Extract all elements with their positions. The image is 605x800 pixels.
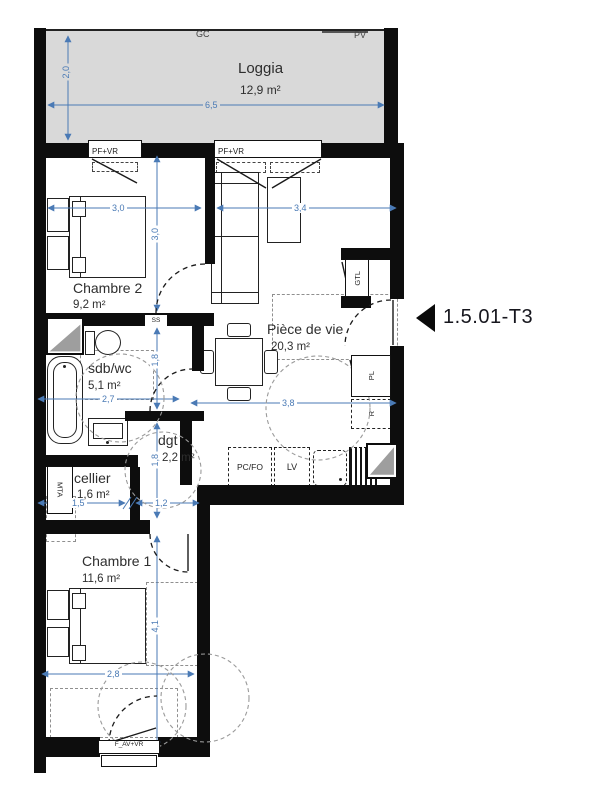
living-name: Pièce de vie (267, 321, 343, 337)
pillow (72, 257, 86, 273)
chair (227, 323, 251, 337)
window-bottom-label: F_AV+VR (99, 741, 159, 748)
kitchen-lv-label: LV (275, 448, 309, 486)
dining-table (215, 338, 263, 386)
chambre1-area: 11,6 m² (82, 573, 120, 585)
wall-dgt-top (125, 411, 204, 421)
dgt-area: 2,2 m² (162, 452, 195, 464)
dim-ch1-w: 2,8 (105, 669, 122, 679)
nightstand (47, 627, 69, 657)
dgt-name: dgt (158, 432, 177, 448)
nightstand (47, 236, 69, 270)
dim-dgt-w: 1,2 (153, 498, 170, 508)
loggia-pv-label: PV (354, 30, 366, 40)
cellier-name: cellier (74, 470, 111, 486)
toilet-tank (85, 331, 95, 355)
technical-shaft-corner (366, 443, 398, 479)
sink-drain (106, 441, 109, 444)
sdb-area: 5,1 m² (88, 380, 121, 392)
unit-pointer-icon (416, 304, 435, 332)
wall-chambre2-living (205, 158, 215, 264)
chambre1-door-swing (150, 534, 188, 572)
sdb-name: sdb/wc (88, 360, 132, 376)
living-area: 20,3 m² (271, 341, 310, 353)
cellier-area: 1,6 m² (77, 489, 110, 501)
toilet-bowl (95, 330, 121, 355)
wall-top-2 (140, 143, 217, 158)
dim-kitchen-w: 3,8 (280, 398, 297, 408)
kitchen-sink (313, 450, 347, 486)
dim-ch1-h: 4,1 (150, 618, 160, 635)
chambre2-door-swing (156, 264, 205, 313)
window-pfvr-right-label: PF+VR (215, 147, 244, 156)
loggia-area-label: 12,9 m² (240, 83, 281, 97)
sofa (211, 172, 259, 304)
chambre2-name: Chambre 2 (73, 280, 142, 296)
chair (227, 387, 251, 401)
wall-gtl-bottom (341, 296, 371, 308)
wall-sdb-living (192, 313, 204, 371)
bed-chambre1 (69, 588, 146, 664)
wall-left (34, 28, 46, 773)
chambre2-area: 9,2 m² (73, 299, 106, 311)
mta-label: MTA (48, 467, 72, 513)
loggia-area (46, 29, 384, 145)
loggia-gc-label: GC (196, 29, 210, 39)
sofa-armrest-line (212, 183, 258, 184)
dim-loggia-w: 6,5 (203, 100, 220, 110)
wall-right-chambre1 (197, 505, 210, 755)
sofa-armrest-line (212, 292, 258, 293)
gtl-label: GTL (346, 260, 368, 296)
loggia-name: Loggia (238, 60, 283, 77)
window-pfvr-left: PF+VR (88, 140, 142, 158)
kitchen-lv: LV (274, 447, 310, 487)
wall-bottom-2 (158, 737, 210, 757)
kitchen-pcfo-label: PC/FO (229, 448, 271, 486)
window-sill-left (92, 162, 138, 172)
wall-right-upper (390, 143, 404, 250)
chair (264, 350, 278, 374)
dim-ch2-h: 3,0 (150, 226, 160, 243)
dim-ch2-w: 3,0 (110, 203, 127, 213)
bed-chambre2 (69, 196, 146, 278)
sofa-cushion-line (212, 236, 258, 237)
ss-label: SS (145, 315, 167, 326)
floor-plan: GC PV Loggia 12,9 m² PF+VR PF+VR F_AV+VR (0, 0, 605, 800)
kitchen-sink-drain (339, 478, 342, 481)
wall-top-1 (46, 143, 90, 158)
nightstand (47, 590, 69, 620)
wall-top-3 (320, 143, 390, 158)
kitchen-pcfo: PC/FO (228, 447, 272, 487)
fridge-box: R (351, 399, 391, 429)
dim-loggia-h: 2,0 (61, 64, 71, 81)
dim-living-w: 3,4 (292, 203, 309, 213)
dim-dgt-h: 1,8 (150, 452, 160, 469)
sink-basin (93, 423, 123, 439)
chambre1-name: Chambre 1 (82, 553, 151, 569)
pillow (72, 593, 86, 609)
nightstand (47, 198, 69, 232)
window-pfvr-right: PF+VR (214, 140, 322, 158)
pl-closet: PL (351, 355, 391, 397)
bathroom-sink (88, 418, 128, 446)
wall-right-mid (390, 250, 404, 299)
wall-cellier-dgt (130, 467, 140, 520)
technical-shaft (46, 317, 84, 355)
pillow (72, 201, 86, 217)
chambre1-bottom-zone (50, 688, 178, 738)
pillow (72, 645, 86, 661)
wall-bottom-1 (34, 737, 100, 757)
gtl-box: GTL (345, 259, 369, 297)
dim-sdb-w: 2,7 (100, 394, 117, 404)
bathtub-drain (63, 365, 66, 368)
fridge-label: R (352, 400, 390, 428)
sofa-back-line (221, 173, 222, 303)
unit-label: 1.5.01-T3 (443, 306, 533, 329)
bathtub (47, 356, 83, 444)
wall-loggia-right (384, 28, 398, 146)
ss-marker: SS (145, 315, 167, 326)
wall-chambre1-top (34, 520, 150, 534)
pl-label: PL (352, 356, 390, 396)
window-pfvr-left-label: PF+VR (89, 147, 118, 156)
bathtub-inner (53, 362, 77, 438)
window-bottom-sill (101, 755, 157, 767)
dim-sdb-h: 1,8 (150, 352, 160, 369)
sdb-door-swing (150, 369, 192, 411)
window-sill-right-b (270, 162, 320, 173)
window-bottom: F_AV+VR (98, 740, 160, 754)
wall-bottom-upper-block (197, 485, 404, 505)
